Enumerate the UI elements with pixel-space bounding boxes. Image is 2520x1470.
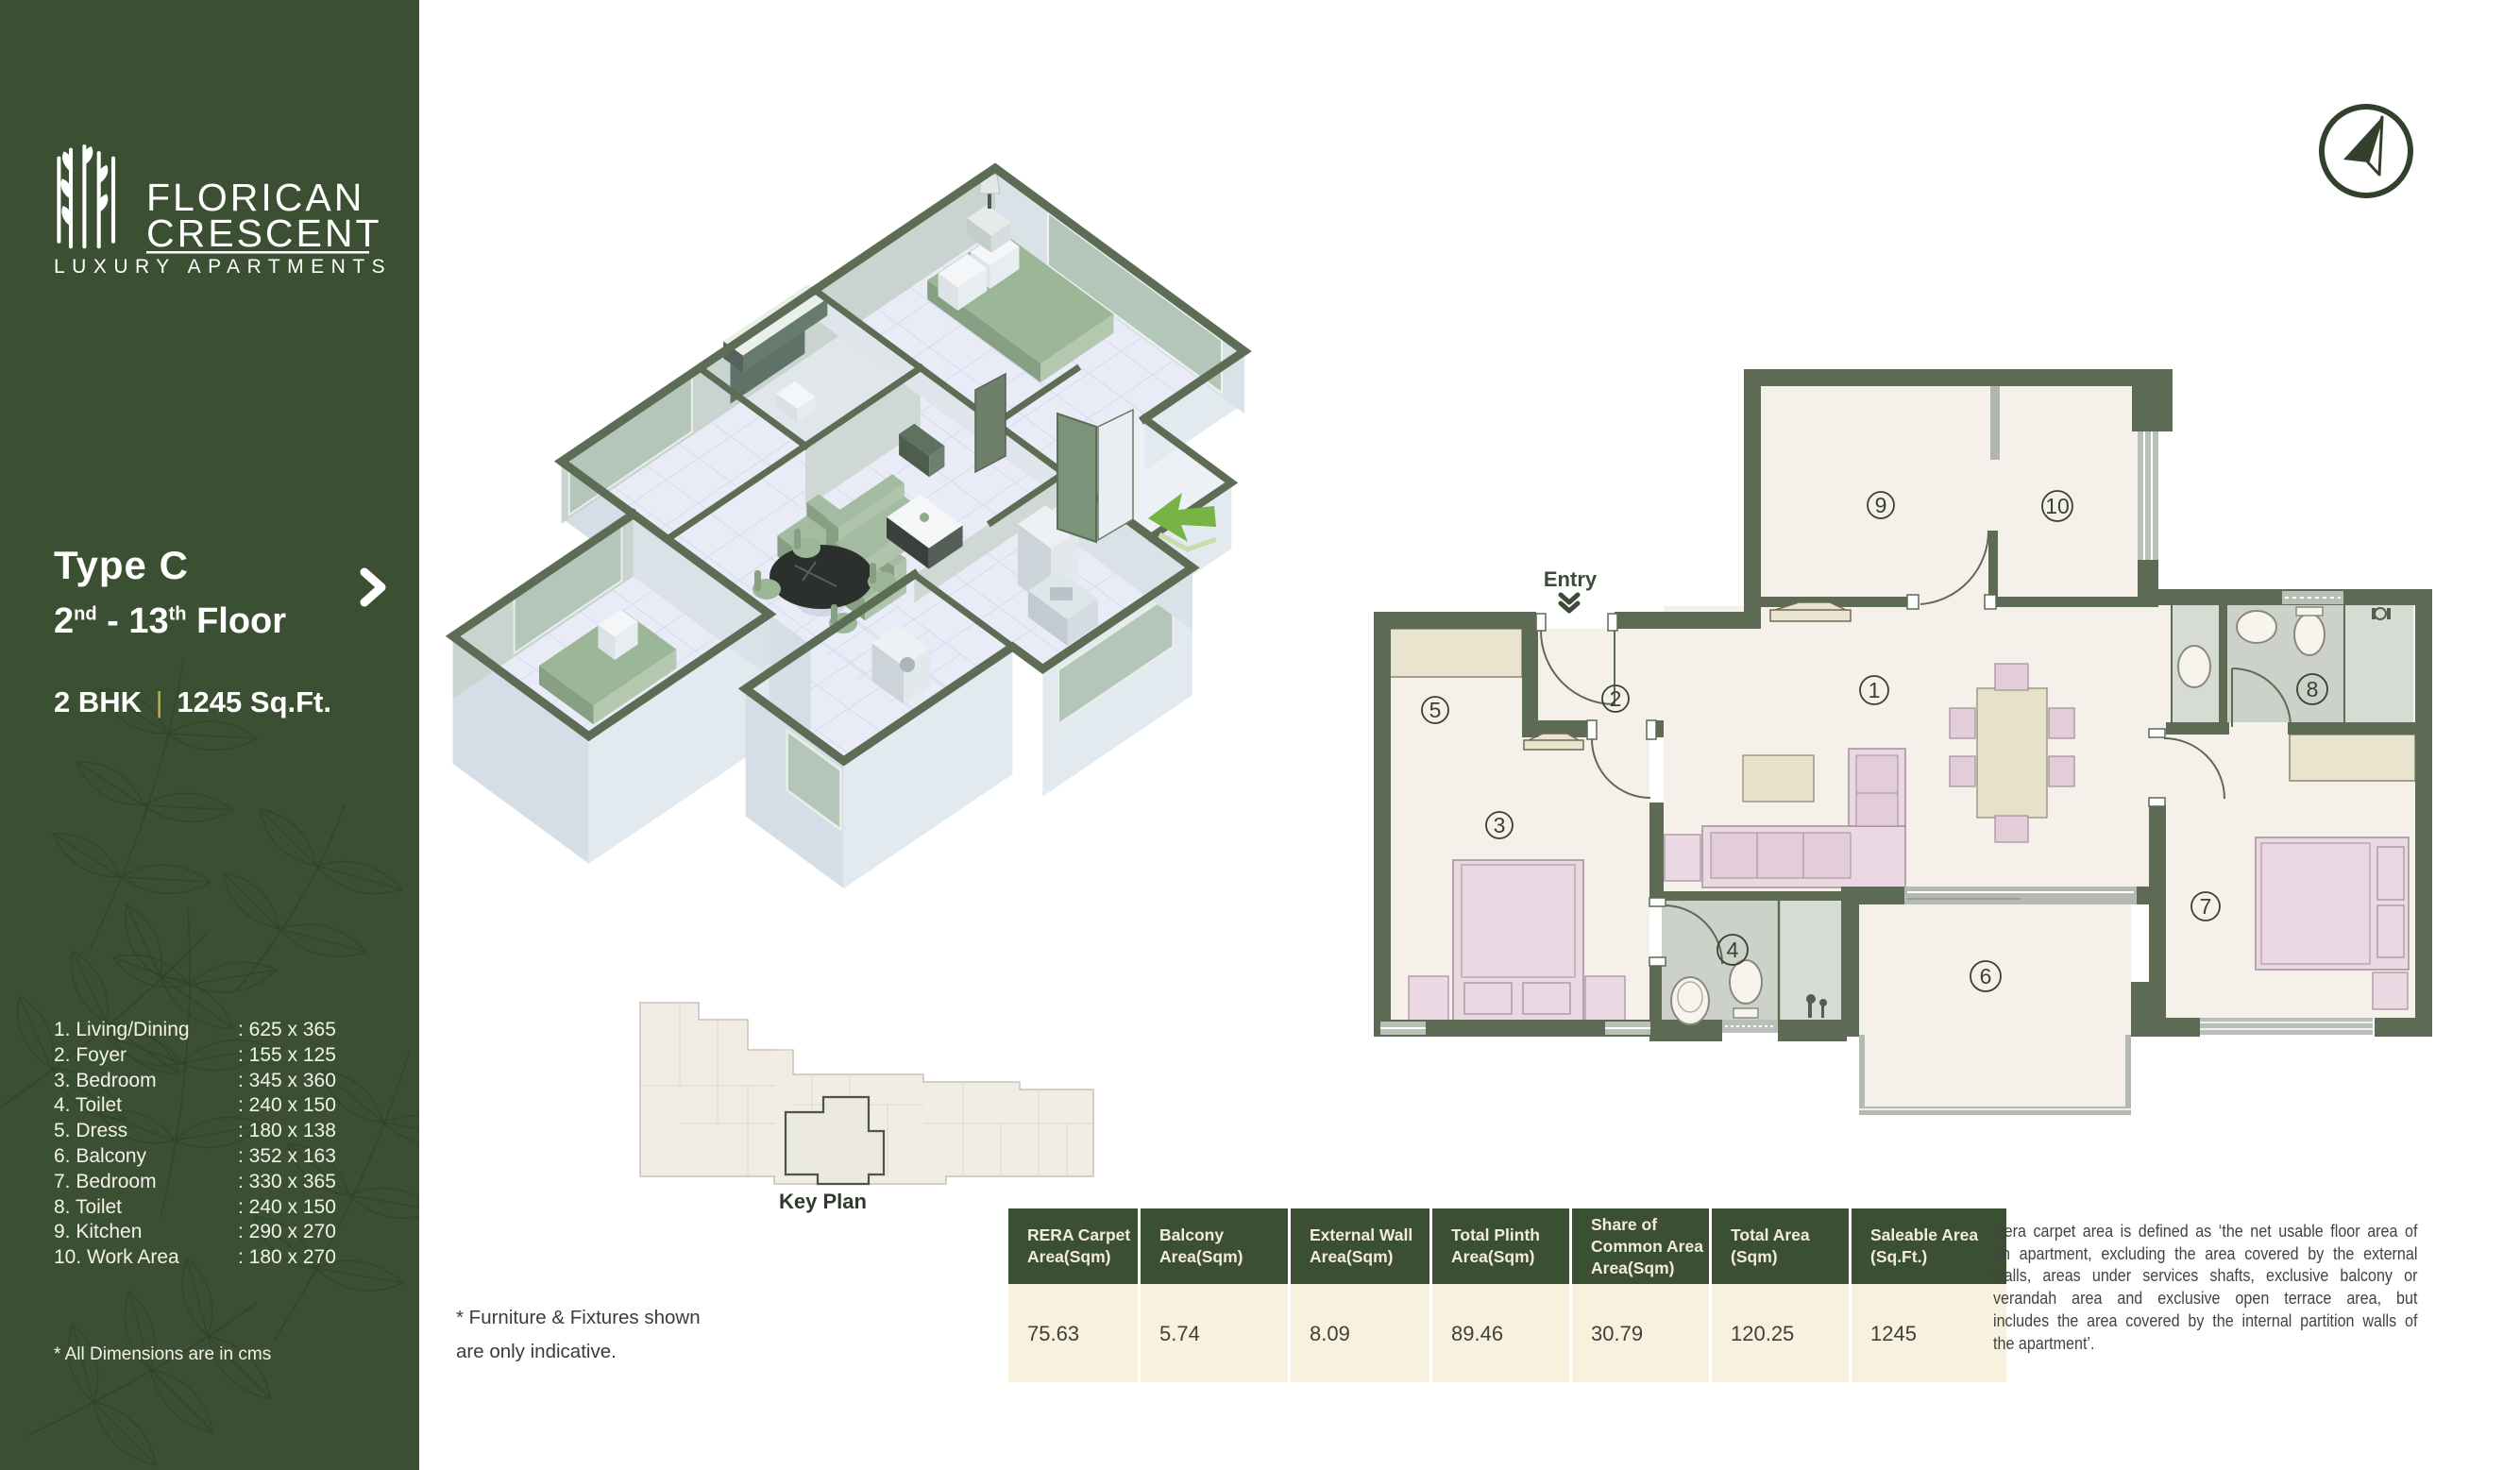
svg-text:4: 4 <box>1727 938 1739 962</box>
svg-text:5: 5 <box>1429 698 1442 722</box>
svg-text:9: 9 <box>1875 493 1887 517</box>
svg-text:8: 8 <box>2307 677 2319 701</box>
svg-text:6: 6 <box>1980 964 1992 988</box>
svg-text:2: 2 <box>1610 686 1622 711</box>
svg-text:CRESCENT: CRESCENT <box>146 211 382 255</box>
svg-text:1: 1 <box>1869 678 1881 702</box>
svg-text:Key Plan: Key Plan <box>779 1190 867 1213</box>
svg-text:Entry: Entry <box>1544 567 1598 591</box>
svg-text:10: 10 <box>2045 494 2070 518</box>
svg-text:LUXURY APARTMENTS: LUXURY APARTMENTS <box>54 256 392 278</box>
svg-text:7: 7 <box>2200 894 2212 919</box>
svg-text:3: 3 <box>1494 813 1506 837</box>
